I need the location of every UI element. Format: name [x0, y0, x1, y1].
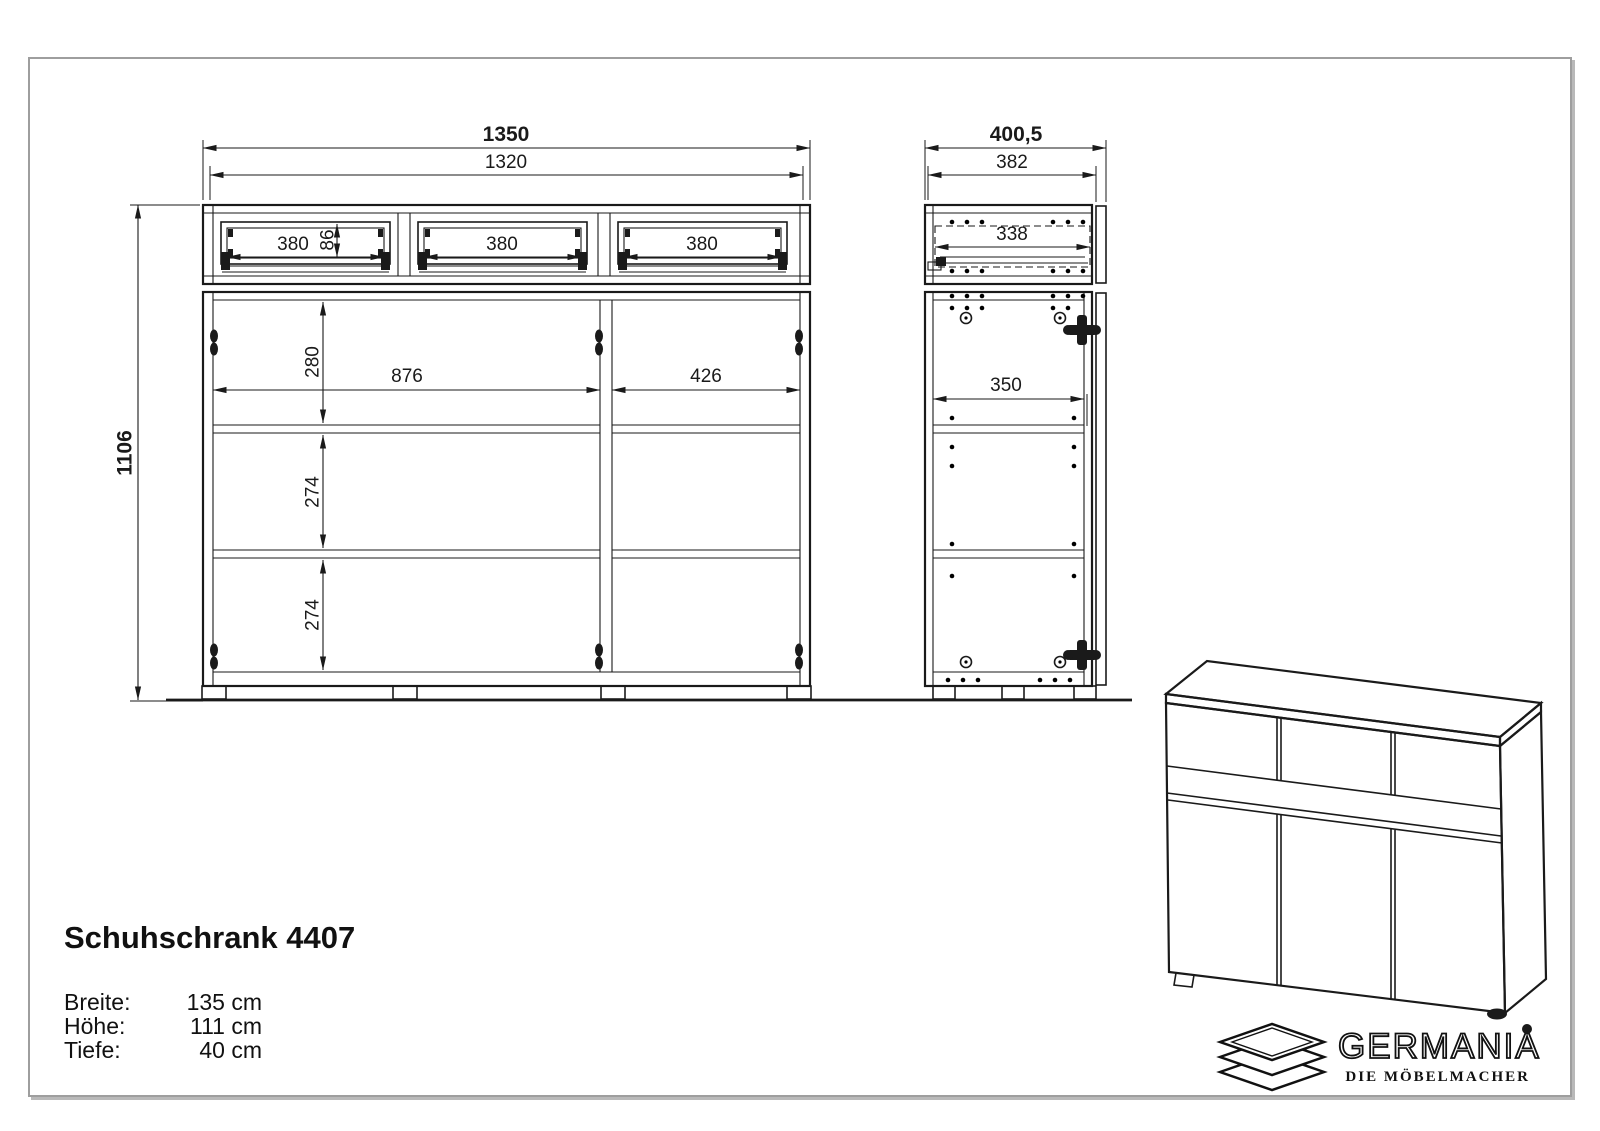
dim-side-overall-depth: 400,5	[990, 123, 1043, 146]
side-top-band: 338	[925, 205, 1106, 284]
brand-tagline: DIE MÖBELMACHER	[1345, 1068, 1530, 1085]
layers-icon	[1220, 1024, 1324, 1090]
dim-side-shelf-depth: 350	[990, 375, 1022, 396]
drawing-page: 1350 1320 1106	[0, 0, 1600, 1131]
drawer-2: 380	[418, 222, 587, 272]
drawer-1: 380 86	[221, 222, 390, 272]
product-title: Schuhschrank 4407	[64, 920, 355, 955]
technical-drawing: 1350 1320 1106	[0, 0, 1600, 1131]
dim-drawer3-width: 380	[686, 234, 718, 255]
dim-drawer2-width: 380	[486, 234, 518, 255]
dim-side-drawer-depth: 338	[996, 224, 1028, 245]
feet-side	[933, 686, 1096, 699]
dim-top-section-height: 280	[303, 346, 324, 378]
dim-front-overall-height: 1106	[113, 430, 136, 476]
dim-drawer-front-height: 86	[318, 229, 339, 250]
registered-dot-icon	[1522, 1024, 1532, 1034]
dim-front-carcass-width: 1320	[485, 152, 527, 173]
ground-line	[130, 700, 1132, 701]
spec-value-hoehe: 111 cm	[190, 1013, 262, 1039]
dim-drawer1-width: 380	[277, 234, 309, 255]
side-main-body: 350	[925, 292, 1106, 686]
side-view: 400,5 382 338	[925, 123, 1106, 699]
dim-middle-section-height: 274	[303, 476, 324, 508]
dim-right-section-width: 426	[690, 366, 722, 387]
spec-label-breite: Breite:	[64, 989, 130, 1015]
dim-front-overall-width: 1350	[483, 123, 530, 146]
front-main-body	[203, 292, 810, 686]
feet-front	[202, 686, 811, 699]
dim-side-carcass-depth: 382	[996, 152, 1028, 173]
brand-wordmark: GERMANIA	[1338, 1027, 1541, 1066]
dim-bottom-section-height: 274	[303, 599, 324, 631]
dim-left-section-width: 876	[391, 366, 423, 387]
spec-value-tiefe: 40 cm	[199, 1037, 262, 1063]
spec-label-tiefe: Tiefe:	[64, 1037, 121, 1063]
title-block: Schuhschrank 4407 Breite: 135 cm Höhe: 1…	[64, 920, 355, 1063]
germania-logo: GERMANIA DIE MÖBELMACHER	[1220, 1024, 1541, 1090]
drawer-3: 380	[618, 222, 787, 272]
perspective-sketch	[1166, 661, 1546, 1020]
spec-label-hoehe: Höhe:	[64, 1013, 125, 1039]
front-view: 1350 1320 1106	[113, 123, 811, 700]
spec-value-breite: 135 cm	[187, 989, 262, 1015]
